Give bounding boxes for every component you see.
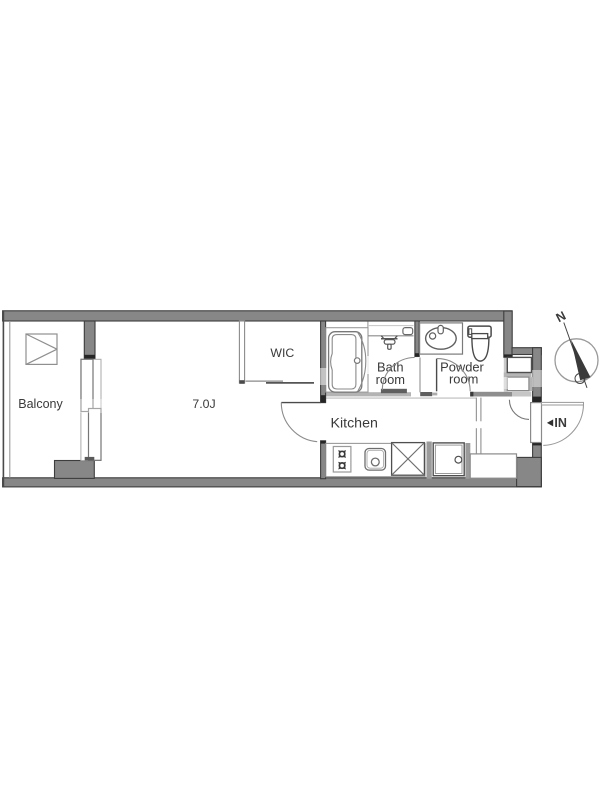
svg-text:WIC: WIC [270,346,294,360]
svg-text:room: room [449,372,478,387]
svg-text:room: room [376,372,405,387]
svg-text:N: N [554,309,568,326]
svg-text:Balcony: Balcony [18,397,63,411]
svg-text:7.0J: 7.0J [192,397,215,411]
svg-text:Kitchen: Kitchen [331,415,378,431]
svg-text:IN: IN [554,416,567,430]
